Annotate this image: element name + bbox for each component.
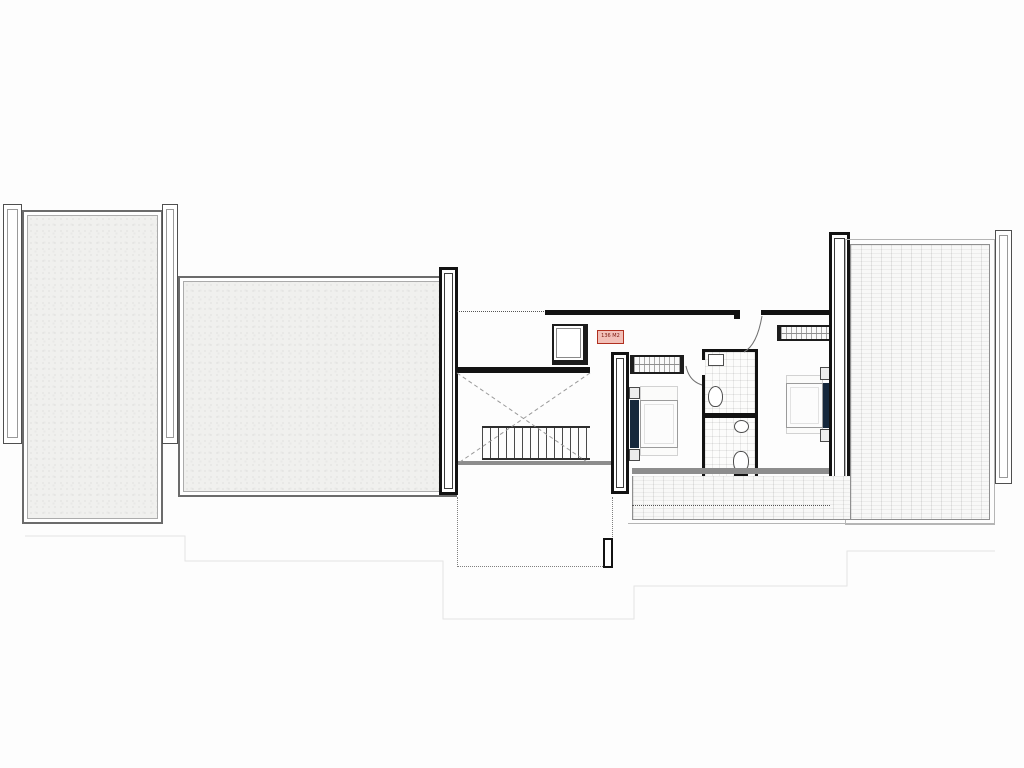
plan-linework-overlay bbox=[0, 0, 1024, 768]
door-swing-arc-bedroom bbox=[686, 366, 702, 385]
floor-plan-canvas: 136 M2 bbox=[0, 0, 1024, 768]
lower-floor-ghost-outline bbox=[25, 536, 995, 619]
door-swing-arc-hall bbox=[744, 316, 762, 352]
